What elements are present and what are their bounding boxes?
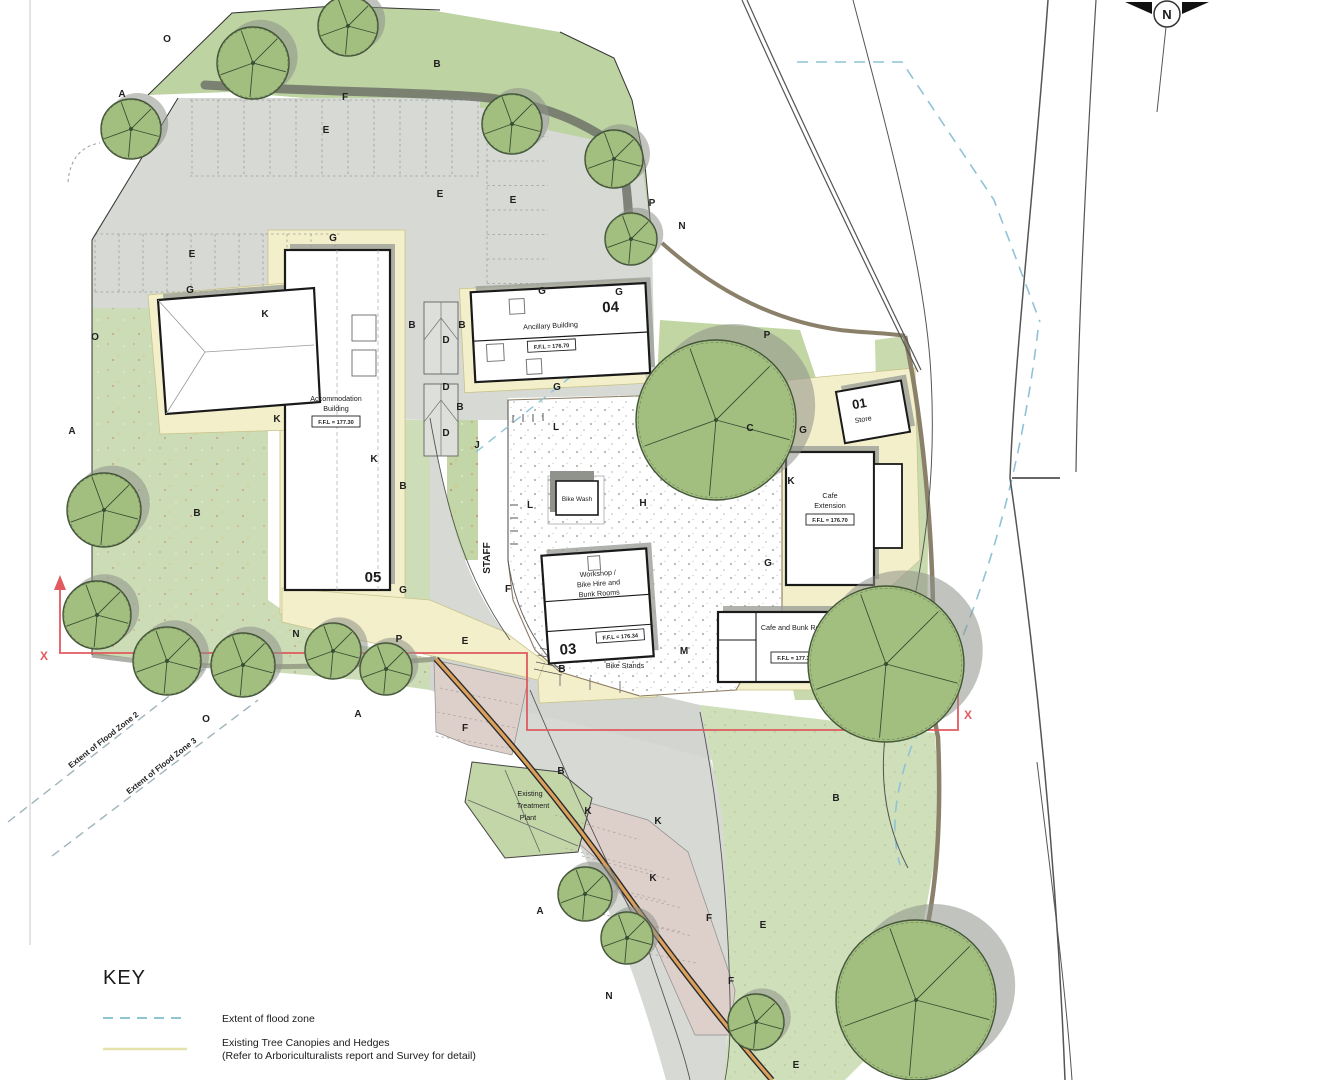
plan-letter: A xyxy=(68,426,75,437)
svg-text:Treatment: Treatment xyxy=(517,801,550,810)
plan-letter: N xyxy=(678,221,685,232)
plan-letter: B xyxy=(458,320,465,331)
plan-letter: E xyxy=(462,636,469,647)
flood-zone-3-label: Extent of Flood Zone 3 xyxy=(125,736,199,797)
building-05-name-line1: Accommodation xyxy=(310,394,362,403)
plan-letter: N xyxy=(292,629,299,640)
plan-letter: F xyxy=(706,913,712,924)
plan-letter: K xyxy=(261,309,269,320)
section-marker-x-left: X xyxy=(40,649,48,663)
plan-letter: B xyxy=(193,508,200,519)
plan-letter: E xyxy=(510,195,517,206)
plan-letter: K xyxy=(273,414,281,425)
cafe-extension-name-line2: Extension xyxy=(814,501,846,510)
plan-letter: STAFF xyxy=(482,542,493,573)
plan-letter: N xyxy=(605,991,612,1002)
site-plan-svg: X X Extent of Flood Zone 2 Extent of Flo… xyxy=(0,0,1321,1080)
plan-letter: H xyxy=(639,498,646,509)
section-marker-x-right: X xyxy=(964,708,972,722)
plan-letter: C xyxy=(746,423,753,434)
plan-letter: K xyxy=(584,806,592,817)
building-05-ffl: F.F.L = 177.30 xyxy=(312,416,360,427)
plan-letter: G xyxy=(538,286,546,297)
building-05-name-line2: Building xyxy=(323,404,349,413)
svg-text:F.F.L = 177.30: F.F.L = 177.30 xyxy=(318,420,354,426)
plan-letter: D xyxy=(442,382,449,393)
building-03-workshop: Workshop / Bike Hire and Bunk Rooms F.F.… xyxy=(541,548,653,663)
plan-letter: B xyxy=(408,320,415,331)
plan-letter: K xyxy=(370,454,378,465)
cafe-extension-name-line1: Cafe xyxy=(822,491,837,500)
plan-letter: F xyxy=(728,976,734,987)
site-plan-drawing: X X Extent of Flood Zone 2 Extent of Flo… xyxy=(0,0,1321,1080)
plan-letter: P xyxy=(764,330,771,341)
building-01-store: 01 Store xyxy=(836,380,910,443)
plan-letter: E xyxy=(760,920,767,931)
plan-letter: B xyxy=(557,766,564,777)
plan-letter: O xyxy=(163,34,171,45)
plan-letter: P xyxy=(649,198,656,209)
plan-letter: D xyxy=(442,428,449,439)
plan-letter: K xyxy=(787,476,795,487)
plan-letter: G xyxy=(329,233,337,244)
key-flood-zone-label: Extent of flood zone xyxy=(222,1013,315,1025)
plan-letter: G xyxy=(186,285,194,296)
cafe-extension-ffl: F.F.L = 176.70 xyxy=(806,514,854,525)
building-05-number: 05 xyxy=(365,569,382,586)
plan-letter: L xyxy=(553,422,559,433)
flood-zone-2-label: Extent of Flood Zone 2 xyxy=(67,710,141,771)
plan-letter: O xyxy=(91,332,99,343)
plan-letter: K xyxy=(649,873,657,884)
plan-letter: G xyxy=(615,287,623,298)
building-01-number: 01 xyxy=(851,395,868,412)
plan-letter: G xyxy=(764,558,772,569)
key-title: KEY xyxy=(103,967,146,989)
plan-letter: E xyxy=(189,249,196,260)
bike-stands-label: Bike Stands xyxy=(606,661,645,670)
plan-letter: J xyxy=(474,440,480,451)
plan-letter: A xyxy=(118,89,125,100)
bike-wash-label: Bike Wash xyxy=(562,496,593,503)
building-03-number: 03 xyxy=(559,641,577,659)
plan-letter: G xyxy=(553,382,561,393)
north-arrow-n: N xyxy=(1162,7,1171,22)
plan-letter: E xyxy=(323,125,330,136)
plan-letter: D xyxy=(442,335,449,346)
plan-letter: M xyxy=(680,646,688,657)
building-04-ffl: F.F.L = 176.70 xyxy=(527,339,576,352)
plan-letter: P xyxy=(396,634,403,645)
plan-letter: A xyxy=(536,906,543,917)
building-04-ancillary: 04 Ancillary Building F.F.L = 176.70 xyxy=(471,283,650,382)
plan-letter: B xyxy=(433,59,440,70)
plan-letter: B xyxy=(456,402,463,413)
plan-letter: G xyxy=(799,425,807,436)
key-tree-canopy-sublabel: (Refer to Arboriculturalists report and … xyxy=(222,1050,476,1062)
svg-text:F.F.L = 176.70: F.F.L = 176.70 xyxy=(812,518,848,524)
svg-text:Existing: Existing xyxy=(517,789,542,798)
plan-letter: K xyxy=(654,816,662,827)
plan-letter: G xyxy=(399,585,407,596)
plan-letter: E xyxy=(437,189,444,200)
key-tree-canopy-label: Existing Tree Canopies and Hedges xyxy=(222,1037,390,1049)
plan-letter: A xyxy=(354,709,361,720)
plan-letter: L xyxy=(527,500,533,511)
plan-letter: B xyxy=(832,793,839,804)
plan-letter: F xyxy=(462,723,468,734)
plan-letter: B xyxy=(558,664,565,675)
building-04-number: 04 xyxy=(602,298,620,316)
plan-letter: B xyxy=(399,481,406,492)
plan-letter: E xyxy=(793,1060,800,1071)
plan-letter: F xyxy=(342,92,348,103)
north-arrow: N xyxy=(1125,1,1209,112)
plan-letter: F xyxy=(505,584,511,595)
plan-letter: O xyxy=(202,714,210,725)
key-legend: KEY Extent of flood zone Existing Tree C… xyxy=(103,967,476,1062)
svg-text:Plant: Plant xyxy=(520,813,536,822)
